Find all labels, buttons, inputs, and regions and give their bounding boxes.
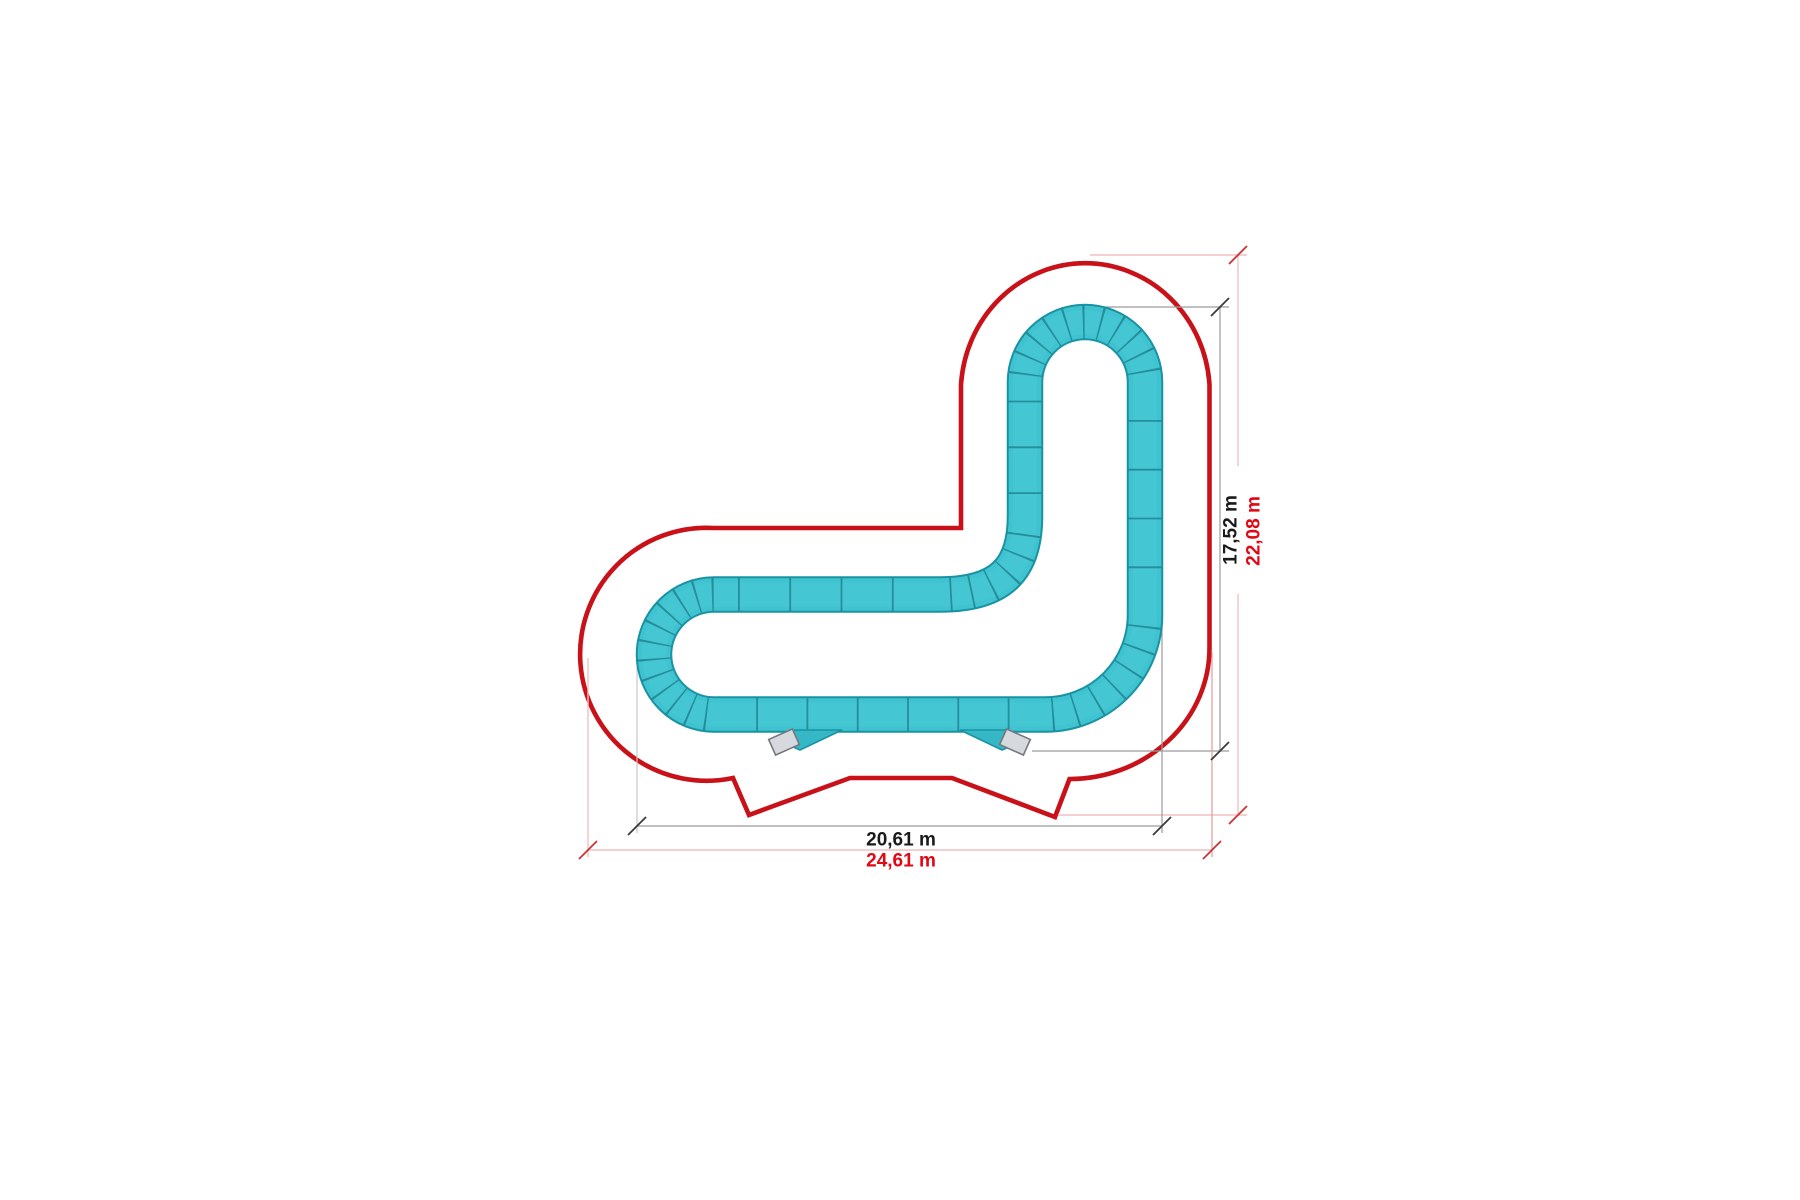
track-surface: [654, 322, 1145, 715]
pumptrack-dimension-diagram: 17,52 m 22,08 m 20,61 m 24,61 m: [0, 0, 1800, 1200]
track-sheen: [654, 322, 1145, 715]
pumptrack-loop: [654, 322, 1145, 755]
track-edge: [654, 322, 1145, 715]
diagram-canvas: 17,52 m 22,08 m 20,61 m 24,61 m: [0, 0, 1800, 1200]
track-width-label: 20,61 m: [866, 830, 936, 851]
start-ramp-right: [1000, 729, 1031, 755]
track-height-label: 17,52 m: [1221, 495, 1242, 565]
zone-width-label: 24,61 m: [866, 851, 936, 872]
zone-height-label: 22,08 m: [1244, 496, 1265, 566]
start-ramp-left: [769, 729, 800, 755]
track-module-joints: [654, 322, 1145, 715]
